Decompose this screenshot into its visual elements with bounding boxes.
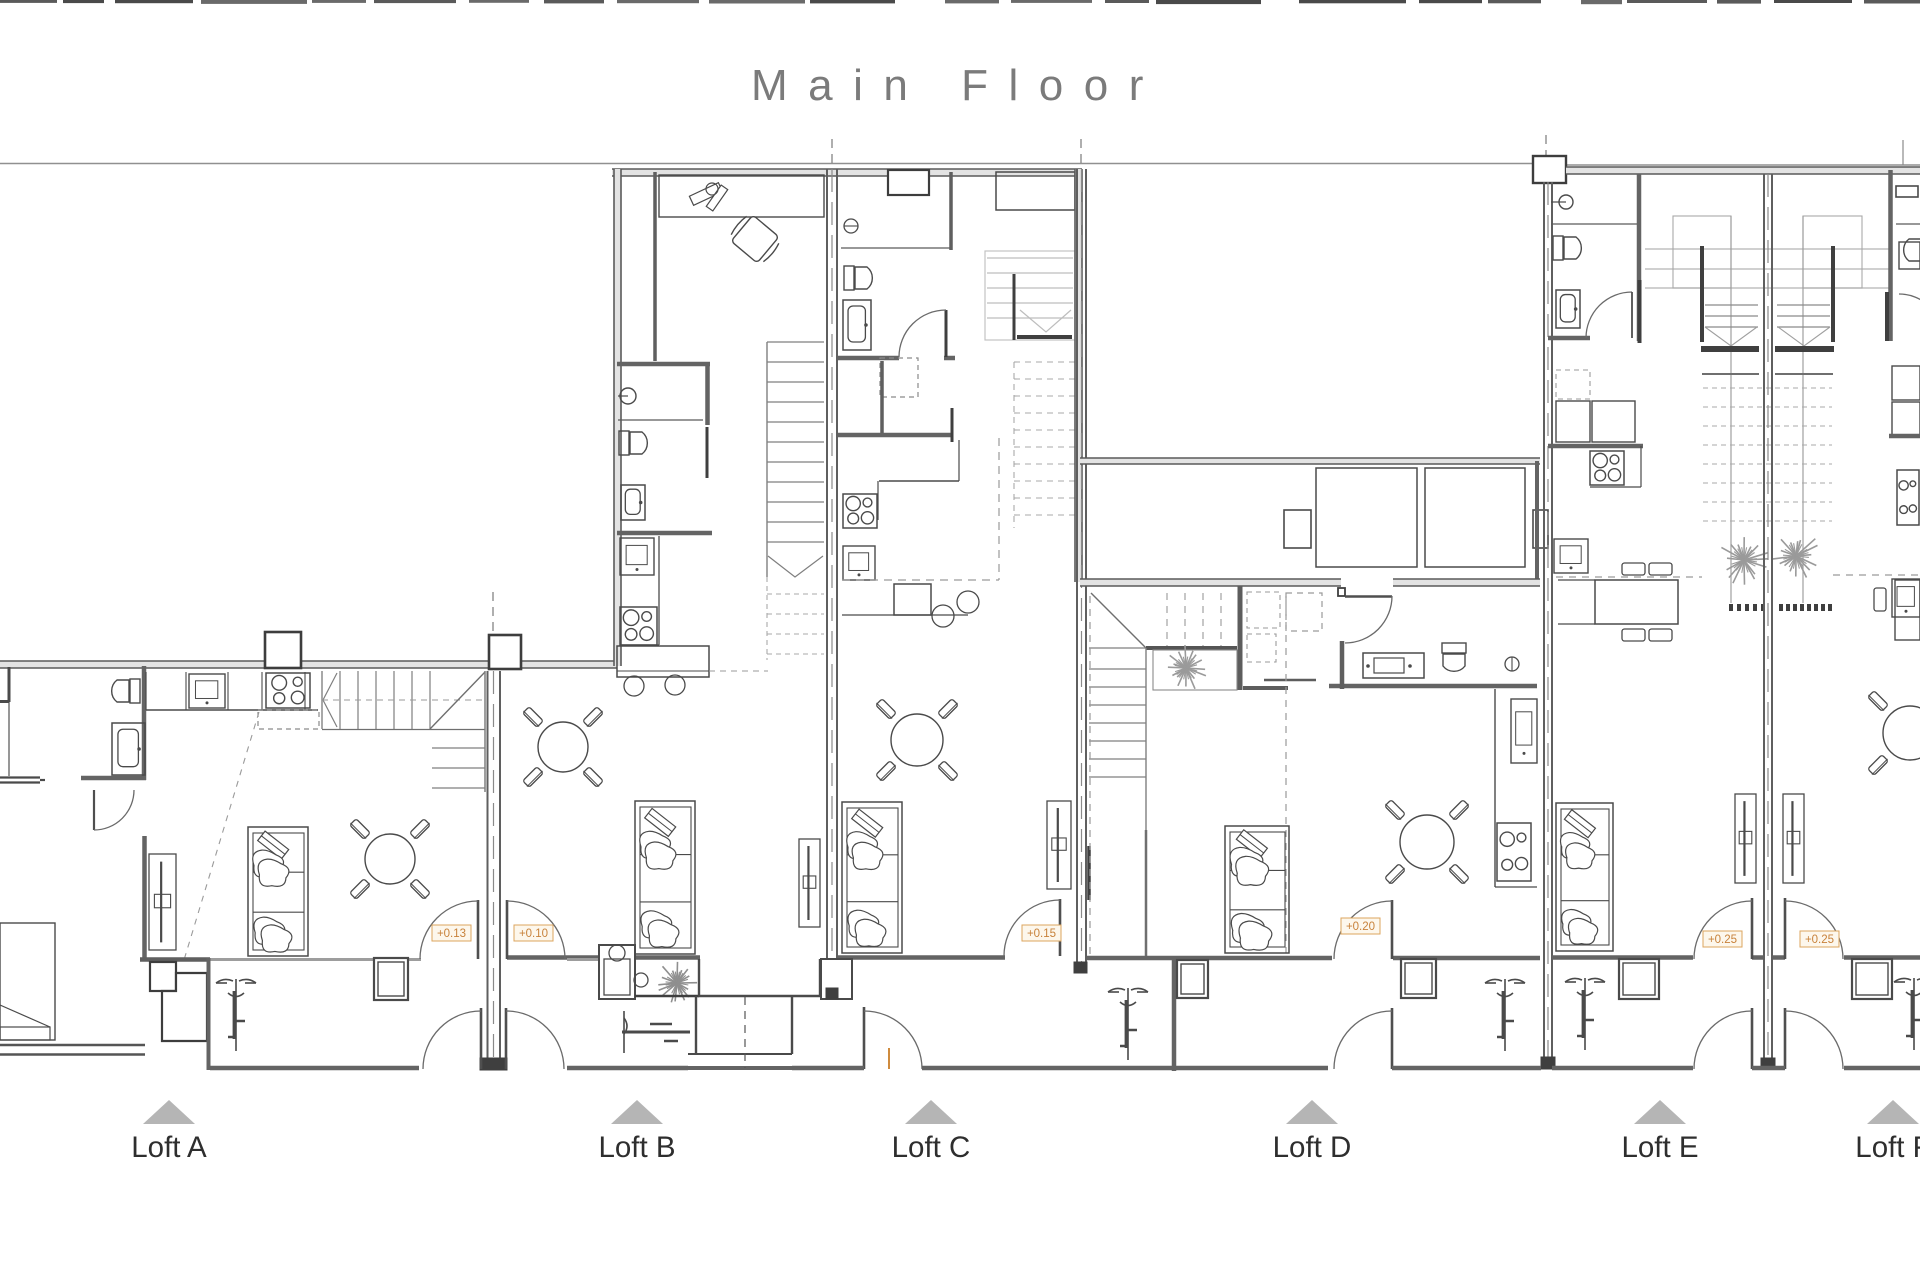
svg-text:Loft F: Loft F — [1855, 1131, 1920, 1164]
svg-text:Loft E: Loft E — [1621, 1131, 1698, 1164]
svg-text:Loft C: Loft C — [892, 1131, 971, 1164]
svg-text:Main Floor: Main Floor — [751, 61, 1164, 110]
svg-text:+0.25: +0.25 — [1805, 934, 1834, 946]
svg-text:+0.25: +0.25 — [1708, 934, 1737, 946]
svg-text:Loft D: Loft D — [1273, 1131, 1352, 1164]
svg-text:+0.15: +0.15 — [1027, 928, 1056, 940]
svg-text:+0.13: +0.13 — [437, 928, 466, 940]
svg-text:+0.10: +0.10 — [519, 928, 548, 940]
svg-text:+0.20: +0.20 — [1346, 921, 1375, 933]
svg-text:Loft A: Loft A — [131, 1131, 207, 1164]
svg-text:Loft B: Loft B — [598, 1131, 675, 1164]
